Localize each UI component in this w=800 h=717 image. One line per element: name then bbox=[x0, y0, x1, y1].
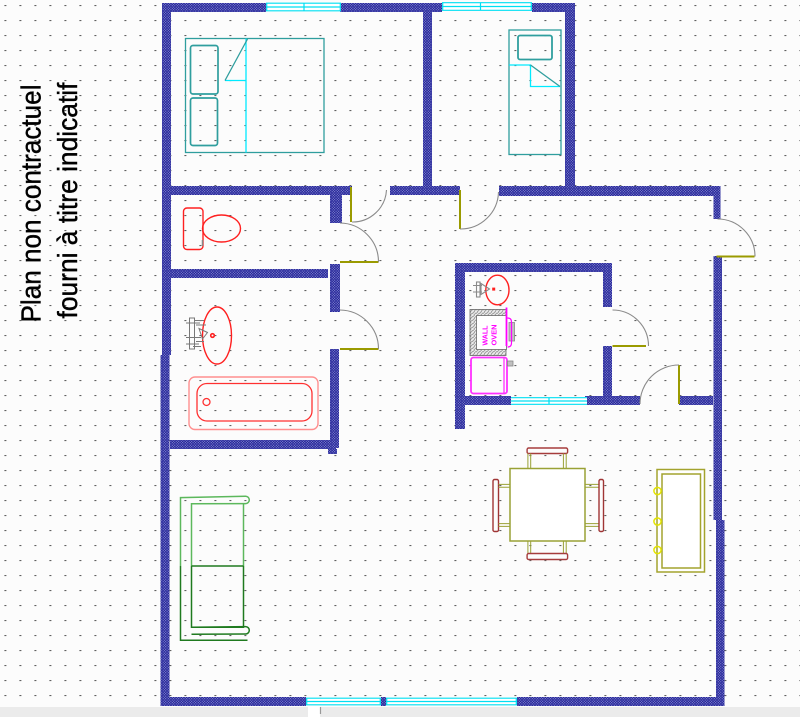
svg-text:OVEN: OVEN bbox=[492, 325, 499, 346]
svg-text:fourni à titre indicatif: fourni à titre indicatif bbox=[52, 82, 83, 318]
svg-text:WALL: WALL bbox=[483, 325, 490, 346]
svg-text:Plan non contractuel: Plan non contractuel bbox=[16, 85, 47, 323]
